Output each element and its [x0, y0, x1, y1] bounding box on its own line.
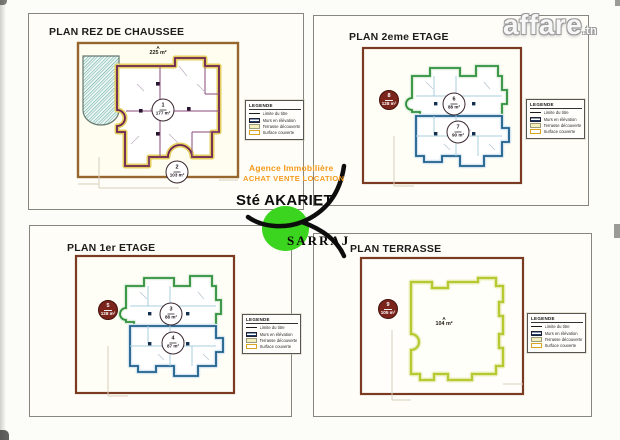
terrace-halo: [411, 278, 503, 380]
legend-swatch-hatch: [246, 332, 257, 337]
area-badge-lot6: 688 m²: [443, 93, 466, 116]
area-badge-common: 8128 m²: [379, 90, 399, 110]
logo-company-name-2: SARRAJ: [287, 233, 350, 249]
legend-swatch-outline: [249, 130, 260, 135]
legend-swatch-pale: [249, 124, 260, 129]
legend-swatch-outline: [531, 343, 542, 348]
legend-swatch-pale: [530, 123, 541, 128]
legend-swatch-hatch: [530, 117, 541, 122]
legend-swatch-line: [530, 112, 541, 113]
legend-swatch-pale: [531, 337, 542, 342]
scan-artifact: [615, 0, 620, 6]
legend-rdc: LEGENDE Limite du titre Murs en élévatio…: [245, 100, 304, 140]
legend-e1: LEGENDE Limite du titre Murs en élévatio…: [242, 314, 301, 354]
legend-swatch-line: [531, 326, 542, 327]
scan-artifact: [614, 224, 620, 238]
site-area-label: A 225 m²: [149, 45, 166, 56]
legend-swatch-outline: [246, 344, 257, 349]
terrace-area-label: A 104 m²: [435, 316, 452, 327]
area-badge-common: 9105 m²: [378, 299, 398, 319]
plan-title-rdc: PLAN REZ DE CHAUSSEE: [49, 26, 184, 38]
scan-artifact: [0, 0, 7, 5]
legend-swatch-line: [246, 327, 257, 328]
legend-swatch-outline: [530, 129, 541, 134]
area-badge-common: 5128 m²: [98, 300, 118, 320]
garden-area: [83, 56, 119, 125]
affare-watermark: affare.tn: [503, 9, 597, 41]
area-badge-lot7: 790 m²: [447, 121, 470, 144]
legend-e2: LEGENDE Limite du titre Murs en élévatio…: [526, 99, 585, 139]
plan-title-e2: PLAN 2eme ETAGE: [349, 31, 449, 43]
logo-tagline-2: ACHAT VENTE LOCATION: [243, 174, 344, 183]
watermark-tld: .tn: [582, 25, 597, 37]
legend-swatch-hatch: [249, 118, 260, 123]
logo-company-name: Sté AKARIET: [236, 192, 333, 209]
legend-swatch-line: [249, 113, 260, 114]
scan-artifact: [0, 430, 9, 440]
legend-swatch-hatch: [531, 331, 542, 336]
area-badge-lot4: 487 m²: [162, 332, 185, 355]
area-badge-lot2: 2103 m²: [166, 161, 189, 184]
plan-title-e1: PLAN 1er ETAGE: [67, 242, 155, 254]
scanned-floorplan-page: PLAN REZ DE CHAUSSEE A 225 m² 1177 m² 21…: [0, 0, 620, 440]
area-badge-lot1: 1177 m²: [152, 99, 175, 122]
legend-swatch-pale: [246, 338, 257, 343]
area-badge-lot3: 388 m²: [160, 303, 183, 326]
logo-tagline-1: Agence Immobilière: [249, 163, 333, 173]
legend-terrasse: LEGENDE Limite du titre Murs en élévatio…: [527, 313, 586, 353]
